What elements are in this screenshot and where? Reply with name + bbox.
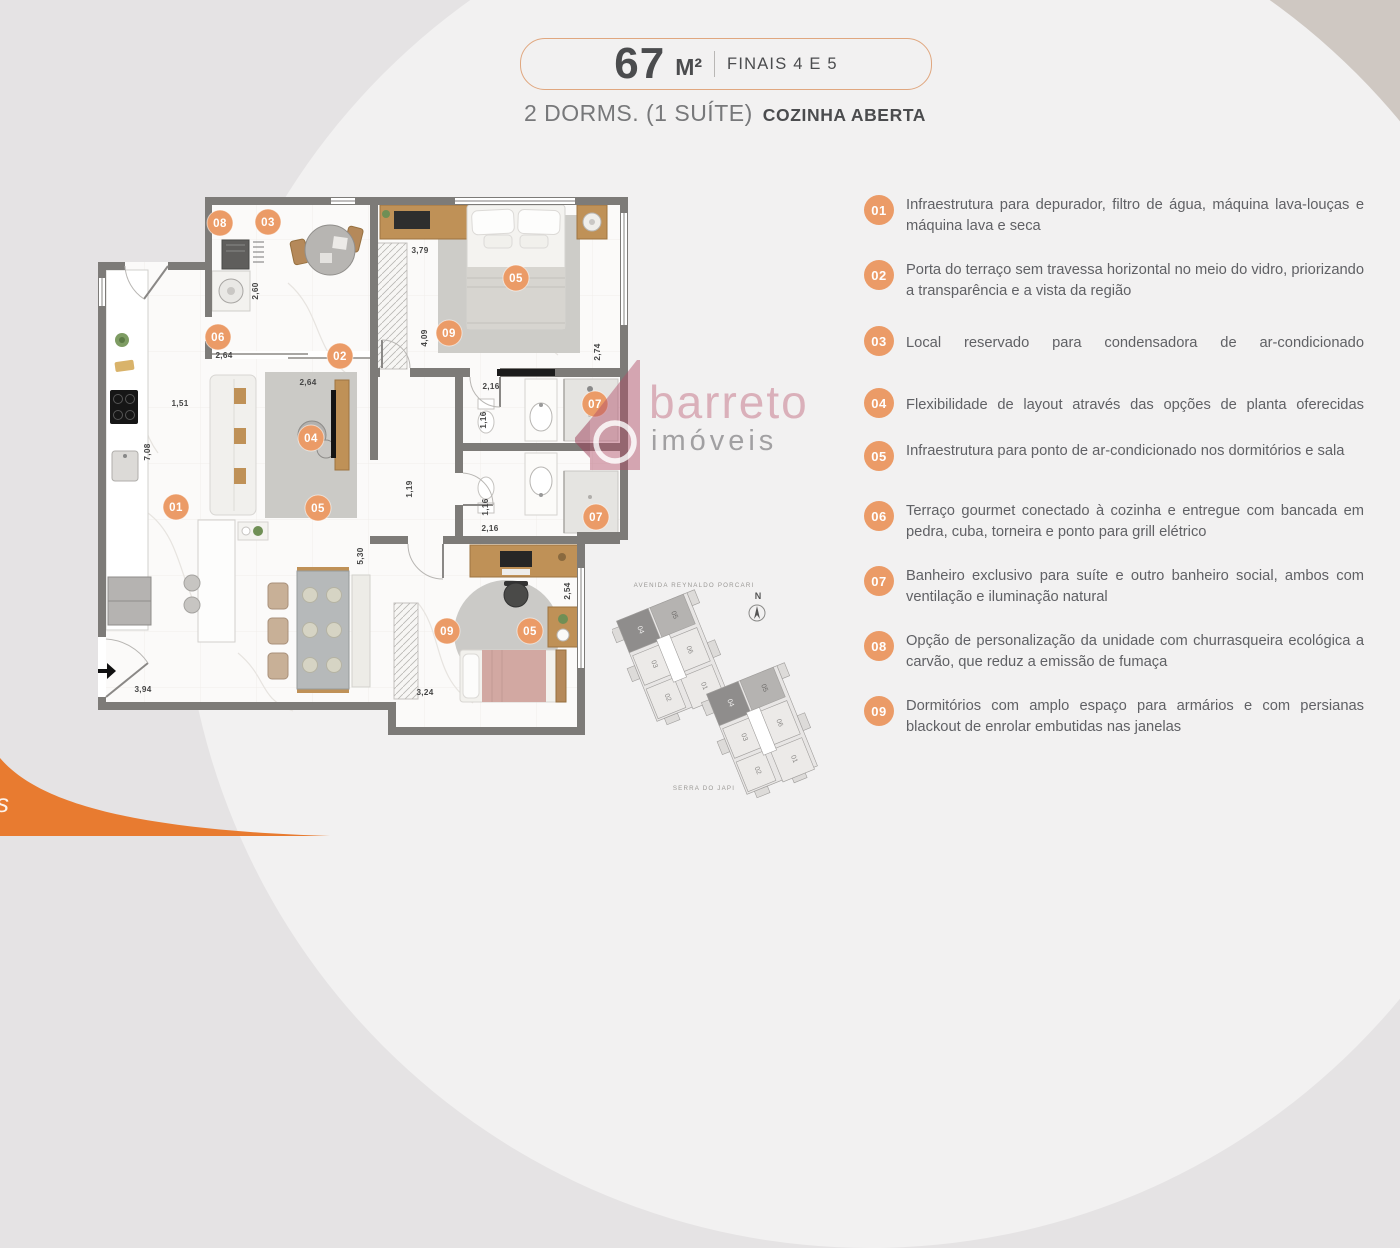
plan-dimension: 5,30: [356, 547, 365, 564]
plan-badge-09: 09: [434, 618, 460, 644]
plan-dimension: 3,94: [134, 685, 151, 694]
plan-subtitle: 2 DORMS. (1 SUÍTE) COZINHA ABERTA: [470, 100, 980, 127]
feature-item-04: 04Flexibilidade de layout através das op…: [864, 388, 1369, 418]
feature-text: Terraço gourmet conectado à cozinha e en…: [906, 501, 1364, 543]
corner-text-fragment: s: [0, 788, 9, 819]
svg-text:N: N: [755, 591, 762, 601]
area-unit: M²: [675, 56, 702, 79]
plan-badge-09: 09: [436, 320, 462, 346]
plan-badge-05: 05: [503, 265, 529, 291]
feature-item-06: 06Terraço gourmet conectado à cozinha e …: [864, 501, 1369, 543]
feature-item-03: 03Local reservado para condensadora de a…: [864, 326, 1369, 356]
feature-item-07: 07Banheiro exclusivo para suíte e outro …: [864, 566, 1369, 608]
subtitle-dorms: 2 DORMS. (1 SUÍTE): [524, 100, 753, 127]
feature-text: Opção de personalização da unidade com c…: [906, 631, 1364, 673]
plan-dimension: 1,51: [171, 399, 188, 408]
feature-number-badge: 05: [864, 441, 894, 471]
feature-text: Dormitórios com amplo espaço para armári…: [906, 696, 1364, 738]
feature-item-02: 02Porta do terraço sem travessa horizont…: [864, 260, 1369, 302]
brand-logo-icon: [575, 355, 655, 475]
suite-tv: [497, 369, 555, 376]
feature-text: Banheiro exclusivo para suíte e outro ba…: [906, 566, 1364, 608]
plan-dimension: 2,16: [482, 382, 499, 391]
feature-item-09: 09Dormitórios com amplo espaço para armá…: [864, 696, 1369, 738]
svg-text:05: 05: [509, 273, 523, 285]
svg-text:06: 06: [211, 332, 225, 344]
svg-text:01: 01: [169, 502, 183, 514]
feature-item-08: 08Opção de personalização da unidade com…: [864, 631, 1369, 673]
page: s 67 M² FINAIS 4 E 5 2 DORMS. (1 SUÍTE) …: [0, 0, 1400, 836]
svg-text:05: 05: [311, 503, 325, 515]
street-bottom-label: SERRA DO JAPI: [673, 785, 735, 792]
compass-icon: N: [749, 591, 765, 621]
feature-number-badge: 07: [864, 566, 894, 596]
plan-badge-06: 06: [205, 324, 231, 350]
plan-badge-05: 05: [305, 495, 331, 521]
floor-plan: 080306020405010509070709053,794,092,742,…: [88, 183, 638, 738]
svg-text:04: 04: [304, 433, 318, 445]
plan-badge-02: 02: [327, 343, 353, 369]
area-header-box: 67 M² FINAIS 4 E 5: [520, 38, 932, 90]
plan-badge-05: 05: [517, 618, 543, 644]
plan-badge-04: 04: [298, 425, 324, 451]
watermark-brand2: imóveis: [651, 425, 777, 458]
plan-dimension: 2,64: [299, 378, 316, 387]
plan-dimension: 2,54: [563, 582, 572, 599]
plan-dimension: 1,16: [479, 411, 488, 428]
plan-dimension: 7,08: [143, 443, 152, 460]
plan-badge-01: 01: [163, 494, 189, 520]
street-top-label: AVENIDA REYNALDO PORCARI: [634, 582, 755, 589]
unit-finals: FINAIS 4 E 5: [714, 51, 838, 77]
dining-furniture: [268, 567, 370, 693]
keyplan: AVENIDA REYNALDO PORCARI N 040503060201: [612, 565, 852, 805]
plan-dimension: 4,09: [420, 329, 429, 346]
feature-text: Porta do terraço sem travessa horizontal…: [906, 260, 1364, 302]
plan-dimension: 1,19: [405, 480, 414, 497]
feature-number-badge: 01: [864, 195, 894, 225]
plan-dimension: 3,24: [416, 688, 433, 697]
svg-text:02: 02: [333, 351, 347, 363]
feature-number-badge: 03: [864, 326, 894, 356]
svg-text:09: 09: [440, 626, 454, 638]
watermark-brand: barreto: [649, 375, 809, 429]
feature-item-01: 01Infraestrutura para depurador, filtro …: [864, 195, 1369, 237]
feature-number-badge: 09: [864, 696, 894, 726]
feature-number-badge: 06: [864, 501, 894, 531]
svg-text:09: 09: [442, 328, 456, 340]
feature-number-badge: 02: [864, 260, 894, 290]
feature-item-05: 05Infraestrutura para ponto de ar-condic…: [864, 441, 1369, 471]
brand-watermark: barreto imóveis: [575, 355, 845, 475]
living-tv: [331, 390, 336, 458]
plan-badge-08: 08: [207, 210, 233, 236]
plan-dimension: 1,16: [481, 498, 490, 515]
svg-text:07: 07: [589, 512, 603, 524]
subtitle-kitchen: COZINHA ABERTA: [763, 105, 926, 126]
feature-number-badge: 04: [864, 388, 894, 418]
svg-text:08: 08: [213, 218, 227, 230]
feature-text: Flexibilidade de layout através das opçõ…: [906, 388, 1364, 418]
bottom-left-corner-decoration: [0, 740, 340, 836]
feature-text: Infraestrutura para depurador, filtro de…: [906, 195, 1364, 237]
feature-text: Infraestrutura para ponto de ar-condicio…: [906, 441, 1364, 471]
area-value: 67: [614, 42, 665, 86]
svg-text:05: 05: [523, 626, 537, 638]
plan-dimension: 2,60: [251, 282, 260, 299]
plan-badge-07: 07: [583, 504, 609, 530]
plan-dimension: 2,64: [215, 351, 232, 360]
feature-text: Local reservado para condensadora de ar-…: [906, 326, 1364, 356]
plan-badge-03: 03: [255, 209, 281, 235]
feature-number-badge: 08: [864, 631, 894, 661]
plan-dimension: 2,16: [481, 524, 498, 533]
svg-text:03: 03: [261, 217, 275, 229]
plan-dimension: 3,79: [411, 246, 428, 255]
